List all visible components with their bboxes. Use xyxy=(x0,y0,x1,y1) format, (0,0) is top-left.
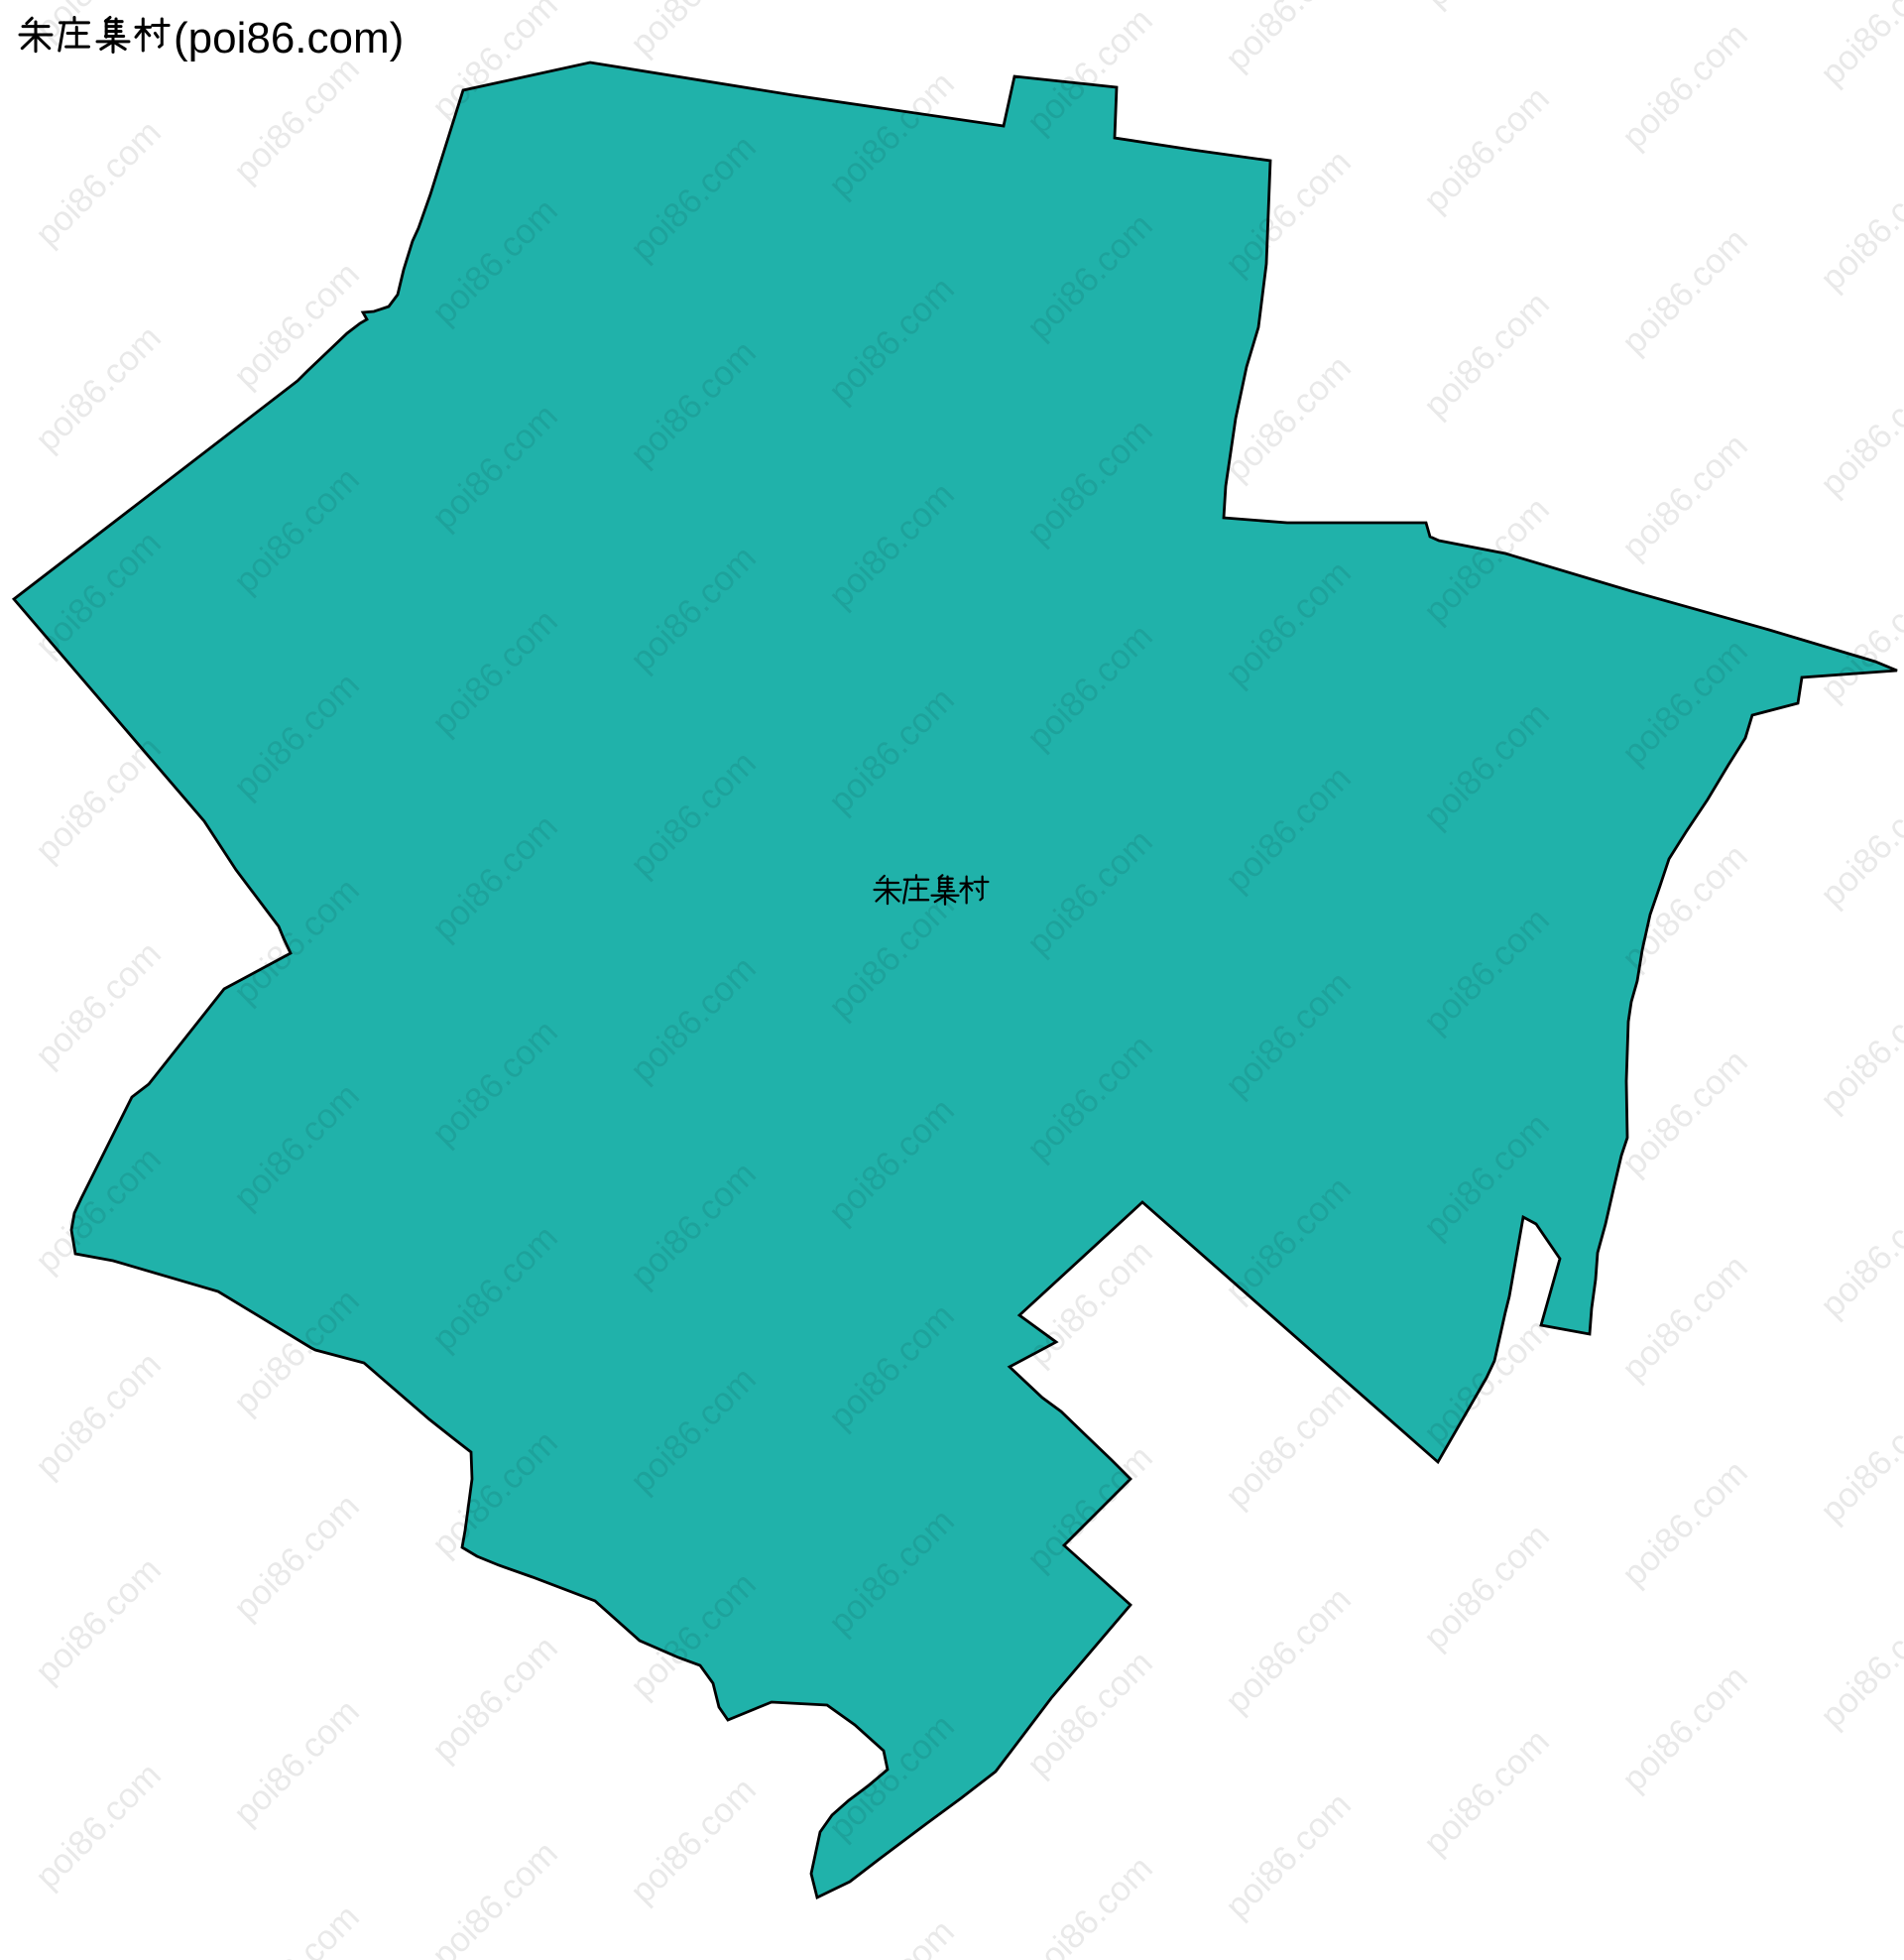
svg-text:poi86.com: poi86.com xyxy=(1218,1375,1359,1516)
svg-text:poi86.com: poi86.com xyxy=(1416,1517,1557,1657)
svg-text:poi86.com: poi86.com xyxy=(623,0,764,63)
svg-text:poi86.com: poi86.com xyxy=(226,50,367,190)
svg-text:poi86.com: poi86.com xyxy=(1813,568,1904,709)
svg-text:(poi86.com): (poi86.com) xyxy=(174,14,404,62)
svg-text:poi86.com: poi86.com xyxy=(1019,1849,1160,1960)
svg-text:poi86.com: poi86.com xyxy=(1614,1658,1755,1799)
svg-text:poi86.com: poi86.com xyxy=(1614,221,1755,362)
svg-text:poi86.com: poi86.com xyxy=(1614,16,1755,157)
svg-text:poi86.com: poi86.com xyxy=(226,1487,367,1628)
svg-text:poi86.com: poi86.com xyxy=(1614,1248,1755,1389)
svg-text:poi86.com: poi86.com xyxy=(226,1898,367,1960)
svg-text:poi86.com: poi86.com xyxy=(623,1771,764,1911)
svg-text:poi86.com: poi86.com xyxy=(1614,1453,1755,1594)
svg-text:poi86.com: poi86.com xyxy=(1218,1785,1359,1926)
svg-text:poi86.com: poi86.com xyxy=(226,1692,367,1833)
svg-text:poi86.com: poi86.com xyxy=(1614,427,1755,567)
svg-text:poi86.com: poi86.com xyxy=(1813,774,1904,915)
svg-text:poi86.com: poi86.com xyxy=(1416,285,1557,426)
svg-text:poi86.com: poi86.com xyxy=(424,1629,565,1770)
svg-text:poi86.com: poi86.com xyxy=(28,934,169,1075)
svg-text:poi86.com: poi86.com xyxy=(28,318,169,459)
svg-text:poi86.com: poi86.com xyxy=(1813,158,1904,299)
svg-text:poi86.com: poi86.com xyxy=(1813,1390,1904,1531)
svg-text:poi86.com: poi86.com xyxy=(1813,0,1904,93)
svg-text:poi86.com: poi86.com xyxy=(1614,1042,1755,1183)
svg-text:poi86.com: poi86.com xyxy=(1416,0,1557,15)
svg-text:poi86.com: poi86.com xyxy=(1813,979,1904,1120)
svg-text:poi86.com: poi86.com xyxy=(28,1345,169,1486)
svg-text:poi86.com: poi86.com xyxy=(1218,1580,1359,1721)
svg-text:poi86.com: poi86.com xyxy=(1416,1722,1557,1863)
svg-text:poi86.com: poi86.com xyxy=(28,729,169,870)
svg-text:poi86.com: poi86.com xyxy=(1813,1184,1904,1325)
svg-text:poi86.com: poi86.com xyxy=(28,113,169,254)
svg-text:poi86.com: poi86.com xyxy=(1416,79,1557,220)
svg-text:poi86.com: poi86.com xyxy=(424,1834,565,1960)
svg-text:poi86.com: poi86.com xyxy=(821,1912,962,1960)
svg-text:poi86.com: poi86.com xyxy=(1813,1595,1904,1736)
svg-text:poi86.com: poi86.com xyxy=(28,1756,169,1897)
svg-text:poi86.com: poi86.com xyxy=(1813,363,1904,504)
svg-text:poi86.com: poi86.com xyxy=(28,1550,169,1691)
svg-text:poi86.com: poi86.com xyxy=(1218,0,1359,78)
